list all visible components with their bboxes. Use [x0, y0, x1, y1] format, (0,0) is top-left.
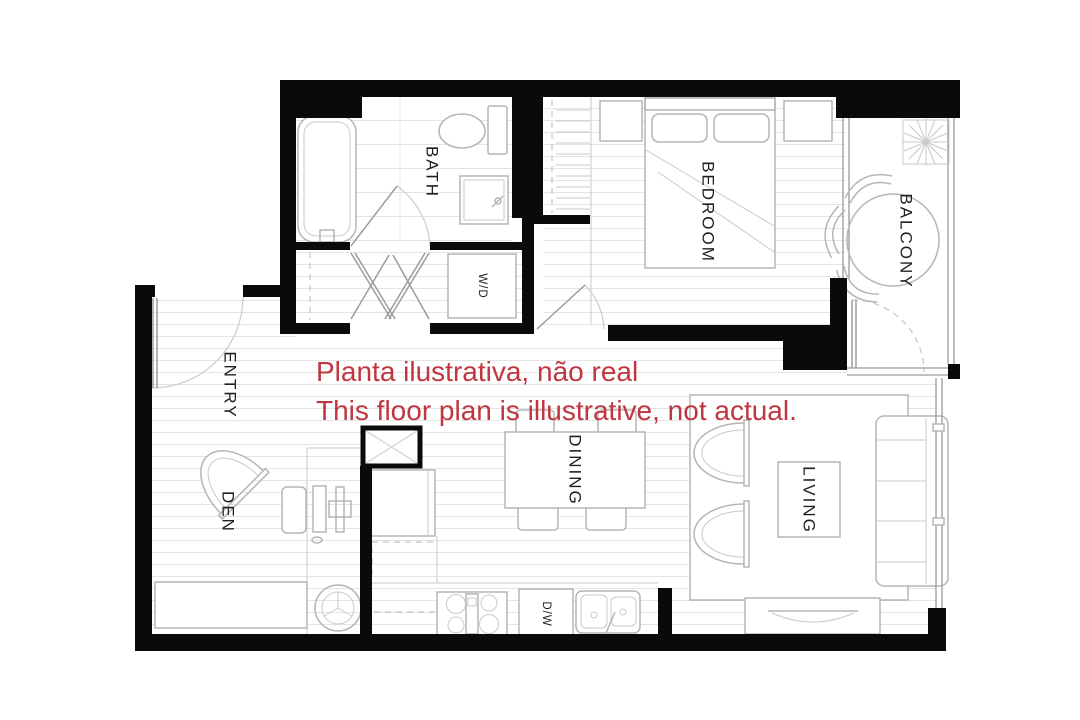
den-label: DEN — [219, 491, 238, 533]
storage-cabinet — [155, 582, 307, 628]
plant-icon — [902, 118, 950, 166]
desk-chair — [282, 487, 306, 533]
window-mullion — [933, 424, 944, 431]
window-mullion — [933, 518, 944, 525]
tv-console — [745, 598, 880, 634]
dishwasher-label: D/W — [540, 601, 552, 626]
annotation-text-pt: Planta ilustrativa, não real — [316, 356, 638, 387]
entry-floor — [152, 297, 296, 343]
laundry-closet: W/D — [448, 254, 516, 318]
balcony-label: BALCONY — [897, 193, 916, 288]
balcony-door-arc — [852, 300, 924, 372]
nightstand — [600, 101, 642, 141]
floor-plan-page: W/D BEDROOM — [0, 0, 1080, 720]
living-label: LIVING — [800, 466, 819, 534]
floor-plan: W/D BEDROOM — [0, 0, 1080, 720]
annotation-text-en: This floor plan is illustrative, not act… — [316, 395, 797, 426]
toilet-tank — [488, 106, 507, 154]
bedroom-label: BEDROOM — [699, 161, 718, 263]
nightstand — [784, 101, 832, 141]
sofa — [876, 416, 948, 586]
balcony-table — [847, 194, 939, 286]
bath-label: BATH — [423, 146, 442, 198]
dining-label: DINING — [566, 434, 585, 506]
desk-monitor — [313, 486, 326, 532]
toilet-bowl — [439, 114, 485, 148]
bathtub — [298, 116, 356, 242]
dining-chair — [518, 506, 558, 530]
laundry-label: W/D — [476, 273, 488, 298]
entry-label: ENTRY — [221, 351, 240, 418]
dining-chair — [586, 506, 626, 530]
fridge — [365, 470, 435, 536]
